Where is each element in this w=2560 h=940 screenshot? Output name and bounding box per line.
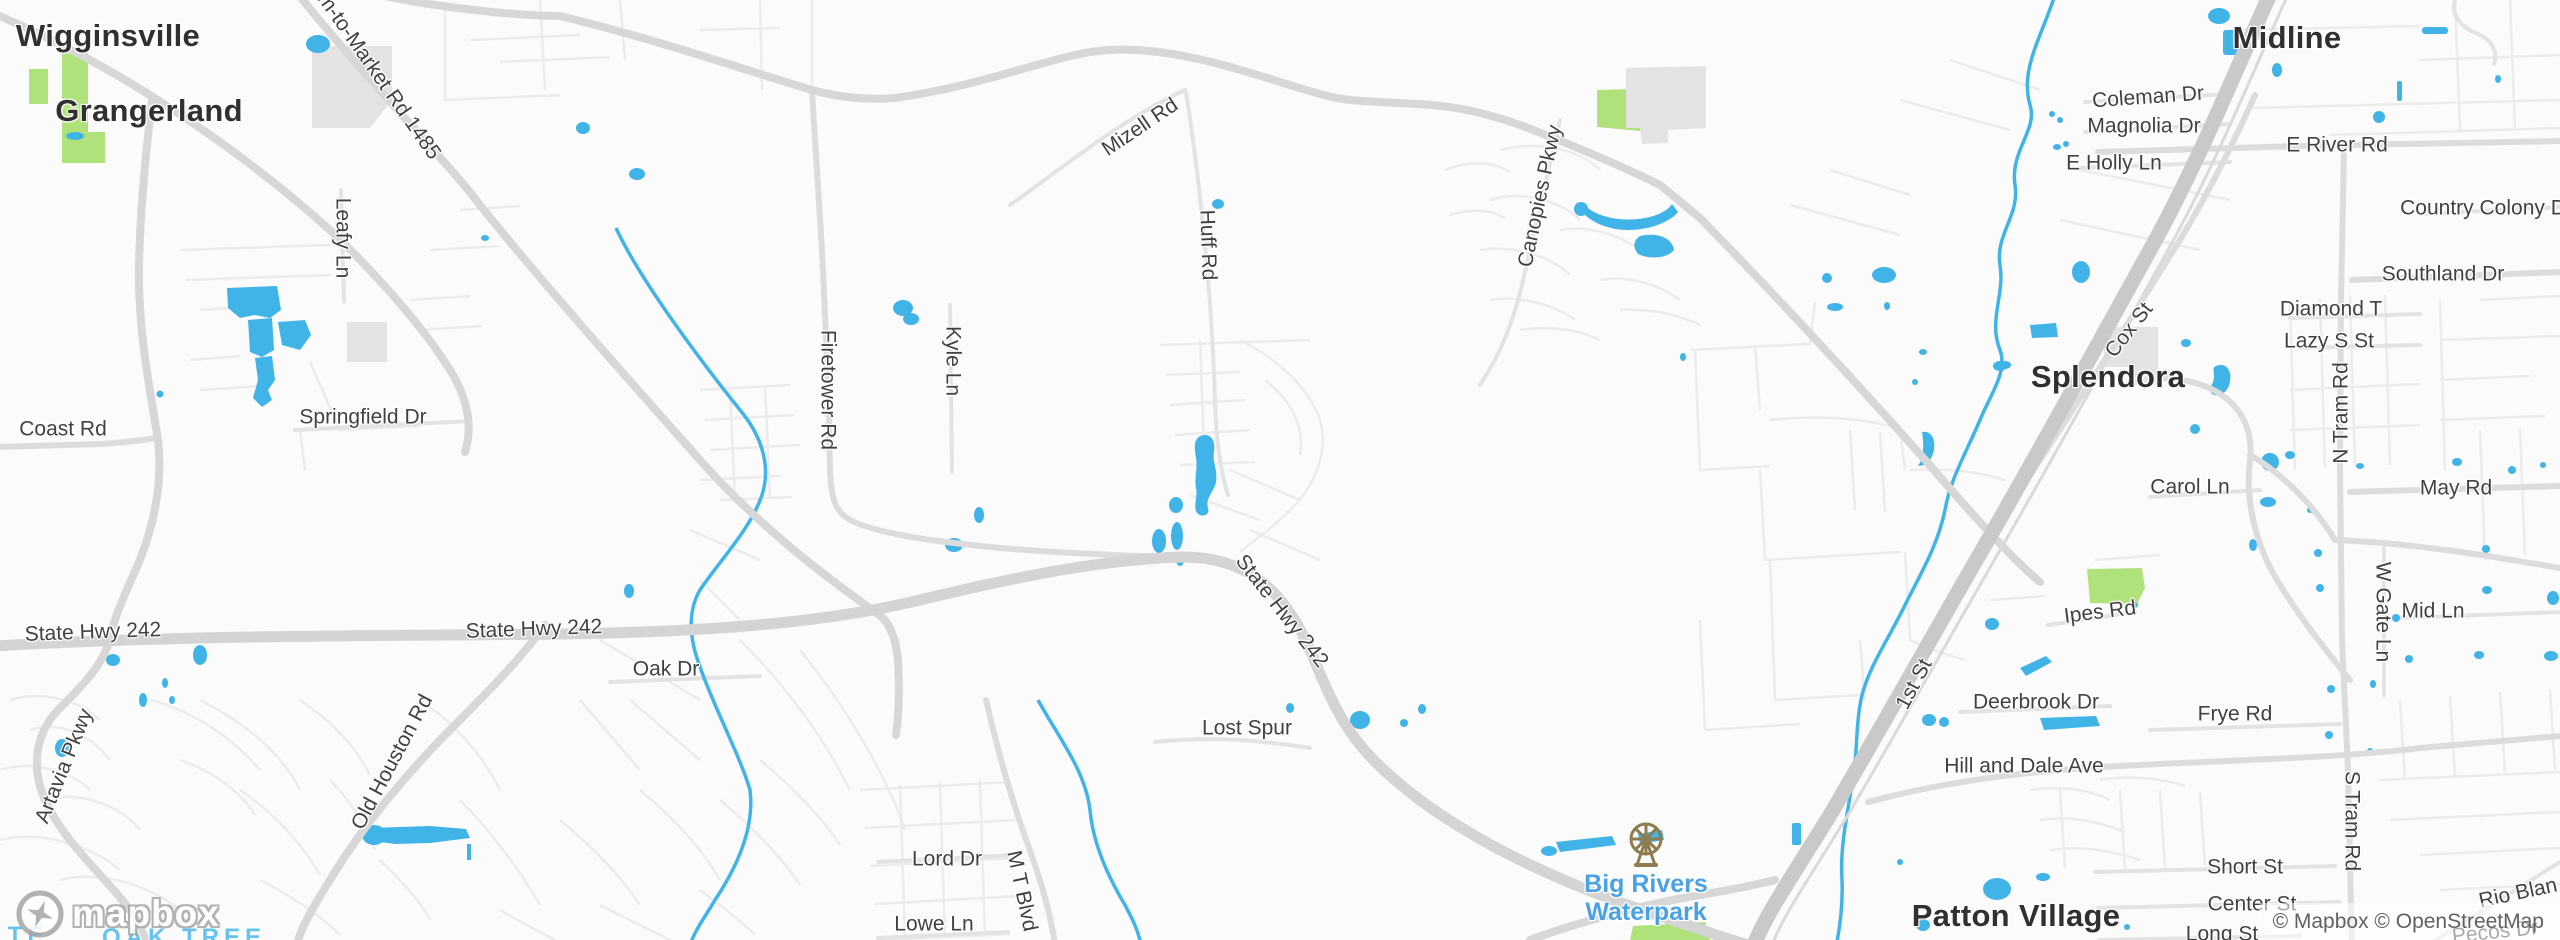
map-label-hill-and-dale-ave: Hill and Dale Ave [1944,754,2104,777]
map-label-e-holly-ln: E Holly Ln [2066,151,2162,174]
mapbox-logo-icon [16,890,64,938]
map-label-long-st: Long St [2186,922,2258,940]
medium-roads-layer [0,92,2560,940]
map-label-magnolia-dr: Magnolia Dr [2087,114,2200,137]
ferris-wheel-icon [1624,819,1668,871]
map-label-e-river-rd: E River Rd [2286,133,2388,156]
map-label-oak-dr: Oak Dr [633,657,700,680]
map-label-kyle-ln: Kyle Ln [941,326,964,396]
map-label-n-tram-rd: N Tram Rd [2329,362,2352,464]
map-label-diamond-t: Diamond T [2280,297,2382,320]
map-label-leafy-ln: Leafy Ln [331,198,354,279]
map-label-frye-rd: Frye Rd [2198,702,2273,725]
map-label-coast-rd: Coast Rd [19,417,107,440]
map-label-firetower-rd: Firetower Rd [816,330,839,450]
attribution-bar[interactable]: © Mapbox © OpenStreetMap [2259,903,2560,940]
map-label-lost-spur: Lost Spur [1202,716,1292,739]
map-label-lazy-s-st: Lazy S St [2284,329,2374,352]
map-label-w-gate-ln: W Gate Ln [2371,562,2394,662]
map-label-state-hwy-242: State Hwy 242 [24,618,161,646]
map-label-southland-dr: Southland Dr [2382,262,2505,285]
poi-name-line1: Big Rivers [1584,870,1708,898]
map-label-midline: Midline [2233,21,2342,55]
map-label-may-rd: May Rd [2420,476,2492,499]
map-label-huff-rd: Huff Rd [1195,209,1221,281]
attribution-text: © Mapbox © OpenStreetMap [2273,910,2544,934]
mapbox-wordmark: mapbox [72,893,220,935]
map-label-lord-dr: Lord Dr [912,847,982,870]
highway-road [1752,0,2290,940]
poi-name-line2: Waterpark [1584,898,1708,926]
map-label-grangerland: Grangerland [55,94,243,128]
map-label-lowe-ln: Lowe Ln [894,912,973,935]
map-label-deerbrook-dr: Deerbrook Dr [1973,690,2099,713]
mapbox-logo[interactable]: mapbox [16,890,220,938]
map-label-state-hwy-242: State Hwy 242 [465,615,602,643]
map-label-patton-village: Patton Village [1912,899,2121,933]
map-label-carol-ln: Carol Ln [2150,475,2229,498]
map-label-mid-ln: Mid Ln [2401,599,2464,622]
map-label-splendora: Splendora [2031,360,2185,394]
map-label-springfield-dr: Springfield Dr [299,405,426,428]
map-label-wigginsville: Wigginsville [16,19,200,53]
state-hwy-242-road [0,557,1745,940]
map-label-s-tram-rd: S Tram Rd [2340,771,2363,871]
poi-big-rivers-waterpark[interactable]: Big Rivers Waterpark [1584,870,1708,926]
map-label-short-st: Short St [2207,855,2283,878]
map-canvas[interactable]: Big Rivers Waterpark WigginsvilleGranger… [0,0,2560,940]
major-roads-layer [0,0,2040,940]
map-label-country-colony-d: Country Colony D [2400,196,2560,219]
